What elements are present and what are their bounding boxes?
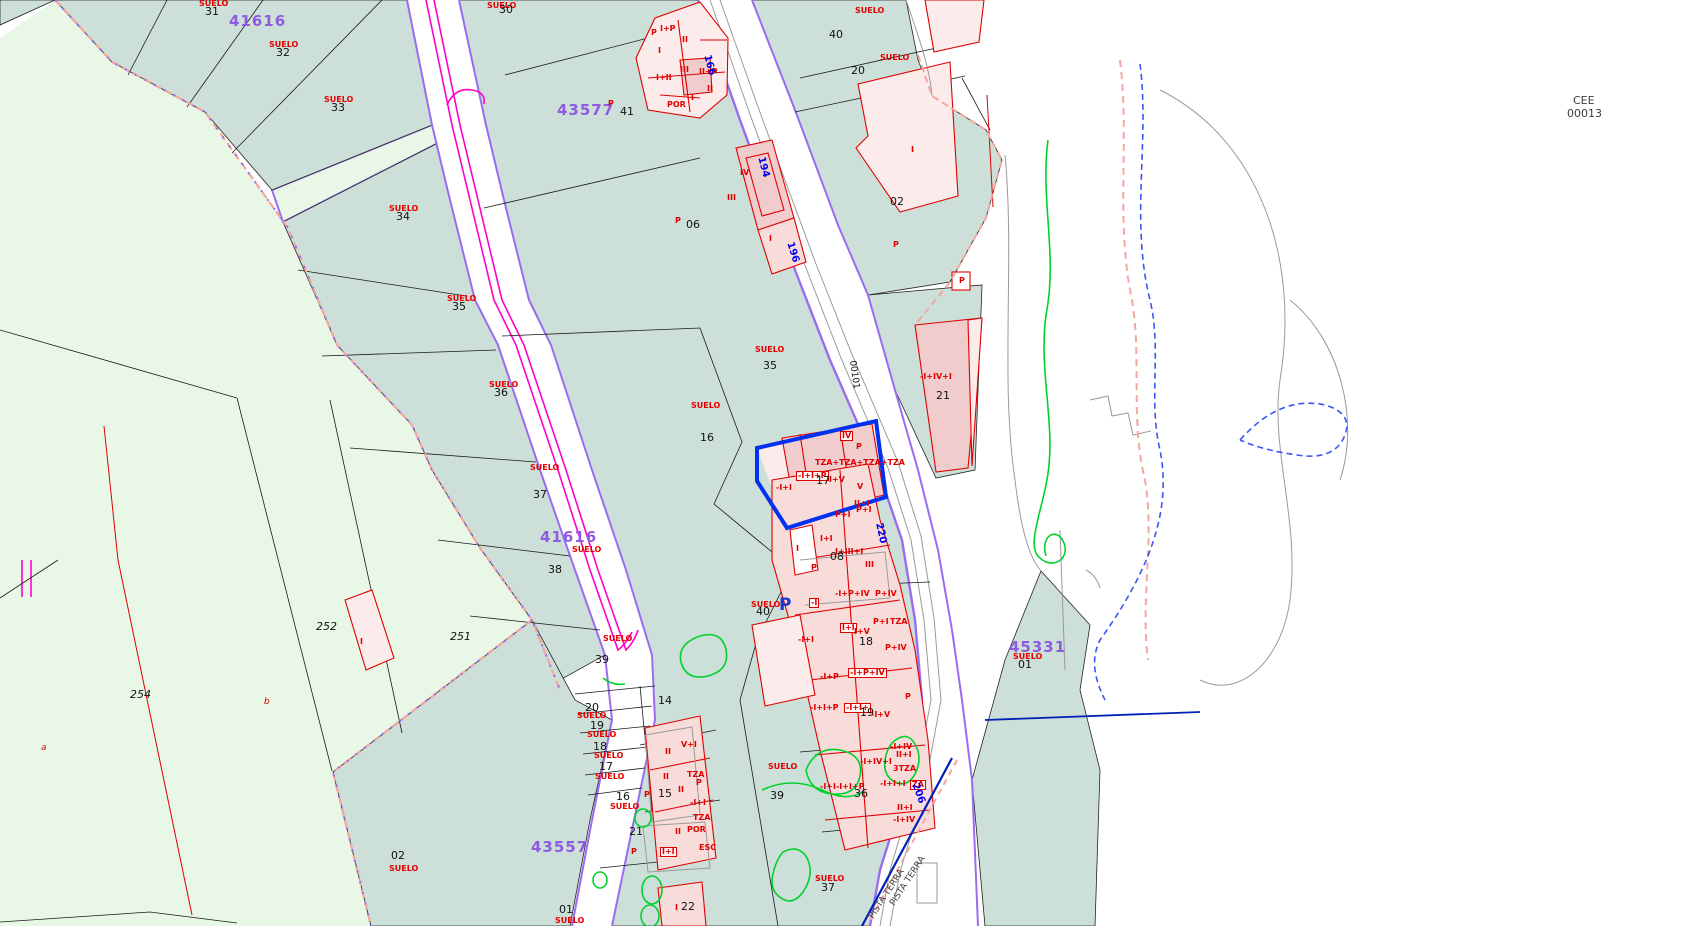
building-code: I [911, 146, 914, 154]
building-code: -I+IV+I [860, 758, 892, 766]
building-code: II+I [896, 751, 912, 759]
building-code: P+IV [885, 644, 907, 652]
building-code: P [651, 29, 657, 37]
suelo-label: SUELO [389, 865, 418, 873]
parcel-number: 02 [391, 850, 405, 861]
parcel-number: 01 [1018, 659, 1032, 670]
sheet-code: CEE 00013 [1567, 95, 1602, 120]
parcel-number: 37 [533, 489, 547, 500]
building-code: 3TZA [893, 765, 916, 773]
building-code: I [691, 94, 694, 102]
building-code: -I+I+I [880, 780, 906, 788]
building-code: II [675, 828, 681, 836]
parcel-number: 08 [830, 551, 844, 562]
suelo-label: SUELO [755, 346, 784, 354]
building-code: I [360, 638, 363, 646]
parcel-number: 17 [816, 475, 830, 486]
building-code: TZA+TZA+TZA+TZA [815, 459, 905, 467]
suelo-label: SUELO [880, 54, 909, 62]
sheet-code-line1: CEE [1567, 95, 1602, 108]
parcel-number: 21 [936, 390, 950, 401]
building-code: V+I [681, 741, 697, 749]
building-code: II [678, 786, 684, 794]
building-code: P [675, 217, 681, 225]
parking-mark: P [779, 597, 791, 614]
building-code: -I+P [820, 673, 839, 681]
block-number: 43557 [531, 840, 588, 855]
block-45331[interactable] [972, 571, 1100, 926]
suelo-label: SUELO [595, 773, 624, 781]
parcel-number: 252 [316, 621, 337, 632]
parcel-number: 20 [851, 65, 865, 76]
building-code: -I+P+IV [835, 590, 870, 598]
building-code: TZA [693, 814, 710, 822]
suelo-label: SUELO [594, 752, 623, 760]
building-code: P [959, 277, 965, 285]
block-number: 41616 [229, 14, 286, 29]
parcel-number: 02 [890, 196, 904, 207]
building-code: -I+I [690, 799, 706, 807]
building-code: POR [687, 826, 706, 834]
parcel-number: 01 [559, 904, 573, 915]
building-code: III [680, 66, 689, 74]
boundary-salmon-far-right [1120, 60, 1149, 660]
parcel-number: 39 [595, 654, 609, 665]
building-code: POR [667, 101, 686, 109]
parcel-number: 33 [331, 102, 345, 113]
suelo-label: SUELO [530, 464, 559, 472]
building-code: P [856, 443, 862, 451]
parcel-number: 17 [599, 761, 613, 772]
building-code: I [769, 235, 772, 243]
building-code: -I+I [776, 484, 792, 492]
parcel-number: 21 [629, 826, 643, 837]
parcel-number: 254 [130, 689, 151, 700]
parcel-number: 38 [548, 564, 562, 575]
building-code: P [893, 241, 899, 249]
suelo-label: SUELO [768, 763, 797, 771]
suelo-label: SUELO [555, 917, 584, 925]
building-code: I+I [660, 847, 677, 857]
parcel-number: 15 [658, 788, 672, 799]
building-code: I+V [829, 476, 845, 484]
parcel-number: 14 [658, 695, 672, 706]
parcel-number: 37 [821, 882, 835, 893]
parcel-number: 06 [686, 219, 700, 230]
suelo-label: SUELO [691, 402, 720, 410]
building-code: TZA [890, 618, 907, 626]
cadastral-map-canvas[interactable]: SUELO31SUELO32SUELO33SUELO34SUELO35SUELO… [0, 0, 1690, 926]
parcel-number: 32 [276, 47, 290, 58]
building-code: P [644, 791, 650, 799]
building-code: III [865, 561, 874, 569]
parcel-number: 40 [756, 606, 770, 617]
suelo-label: SUELO [587, 731, 616, 739]
building-code: P+I [873, 618, 889, 626]
building-code: P+IV [875, 590, 897, 598]
building-topright[interactable] [925, 0, 984, 52]
building-code: -I+V [871, 711, 890, 719]
parcel-number: 36 [494, 387, 508, 398]
building-code: -I+IV+I [920, 373, 952, 381]
sheet-code-line2: 00013 [1567, 108, 1602, 121]
building-code: II [707, 85, 713, 93]
parcel-number: 35 [763, 360, 777, 371]
parcel-number: 16 [700, 432, 714, 443]
building-code: I [796, 545, 799, 553]
building-code: P [696, 779, 702, 787]
parcel-number: 251 [450, 631, 471, 642]
parcel-number: 36 [854, 788, 868, 799]
subparcel-letter: a [41, 744, 47, 753]
parcel-number: 35 [452, 301, 466, 312]
building-code: II [663, 773, 669, 781]
building-code: I [675, 904, 678, 912]
subparcel-letter: b [264, 698, 270, 707]
parcel-number: 30 [499, 4, 513, 15]
parcel-number: 16 [616, 791, 630, 802]
parcel-number: 34 [396, 211, 410, 222]
building-code: P [905, 693, 911, 701]
parcel-number: 31 [205, 6, 219, 17]
boundary-royal-wavy [1095, 64, 1164, 700]
building-code: -I+I [798, 636, 814, 644]
parcel-number: 18 [859, 636, 873, 647]
boundary-royal-loop [1240, 403, 1347, 456]
building-code: P [631, 848, 637, 856]
parcel-number: 39 [770, 790, 784, 801]
building-code: -I [809, 598, 819, 608]
block-number: 41616 [540, 530, 597, 545]
suelo-label: SUELO [603, 635, 632, 643]
building-code: -I+P+IV [848, 668, 887, 678]
building-code: -I+IV [893, 816, 915, 824]
parcel-number: 40 [829, 29, 843, 40]
building-code: -I+I+P [810, 704, 839, 712]
building-code: P+I [856, 506, 872, 514]
building-code: P [811, 564, 817, 572]
building-code: I+P [660, 25, 676, 33]
building-code: ESC [699, 844, 716, 852]
parcel-number: 41 [620, 106, 634, 117]
building-code: I+II [656, 74, 672, 82]
building-code: V [857, 483, 863, 491]
building-code: II [665, 748, 671, 756]
suelo-label: SUELO [610, 803, 639, 811]
building-code: IV [740, 169, 749, 177]
building-code: II+I [897, 804, 913, 812]
block-number: 43577 [557, 103, 614, 118]
building-code: P [608, 100, 614, 108]
parcel-number: 22 [681, 901, 695, 912]
building-code: I+I [820, 535, 833, 543]
building-code: IV [840, 431, 853, 441]
building-code: II [682, 36, 688, 44]
suelo-label: SUELO [572, 546, 601, 554]
building-code: I [658, 47, 661, 55]
building-code: P+I [835, 511, 851, 519]
suelo-label: SUELO [855, 7, 884, 15]
building-code: III [727, 194, 736, 202]
